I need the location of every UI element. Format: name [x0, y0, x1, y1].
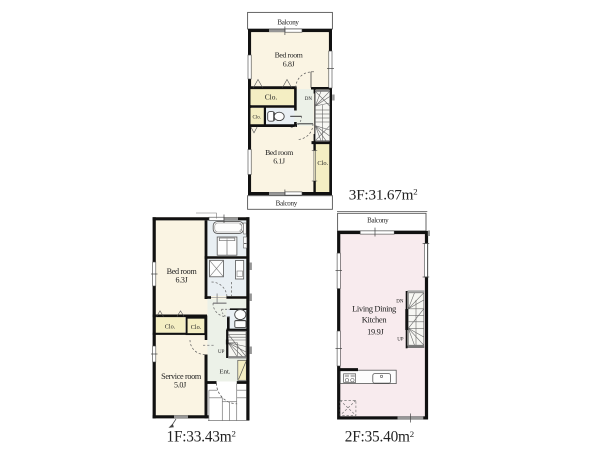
svg-text:Balcony: Balcony [277, 19, 299, 27]
svg-text:1F:33.43m2: 1F:33.43m2 [167, 428, 236, 445]
svg-text:Balcony: Balcony [367, 217, 389, 225]
svg-text:5.0J: 5.0J [174, 380, 186, 389]
svg-text:6.1J: 6.1J [273, 157, 285, 166]
svg-text:6.8J: 6.8J [283, 60, 295, 69]
svg-text:Kitchen: Kitchen [362, 315, 388, 325]
svg-text:UP: UP [218, 350, 225, 355]
svg-text:DN: DN [305, 97, 313, 102]
svg-text:Clo.: Clo. [165, 323, 176, 330]
svg-text:19.9J: 19.9J [367, 328, 384, 337]
svg-text:2F:35.40m2: 2F:35.40m2 [345, 429, 414, 446]
svg-text:6.3J: 6.3J [176, 276, 188, 285]
svg-text:Bed room: Bed room [275, 51, 303, 60]
svg-text:UP: UP [397, 337, 404, 342]
svg-text:Ent.: Ent. [220, 369, 231, 376]
svg-text:Clo.: Clo. [317, 160, 328, 167]
svg-text:3F:31.67m2: 3F:31.67m2 [349, 186, 418, 203]
svg-text:Clo.: Clo. [253, 115, 261, 120]
svg-text:Bed room: Bed room [167, 267, 198, 276]
svg-text:DN: DN [396, 299, 404, 304]
svg-text:Clo.: Clo. [191, 324, 202, 331]
svg-text:Living Dining: Living Dining [352, 303, 397, 313]
svg-text:Balcony: Balcony [276, 200, 298, 208]
svg-text:Clo.: Clo. [265, 93, 278, 102]
